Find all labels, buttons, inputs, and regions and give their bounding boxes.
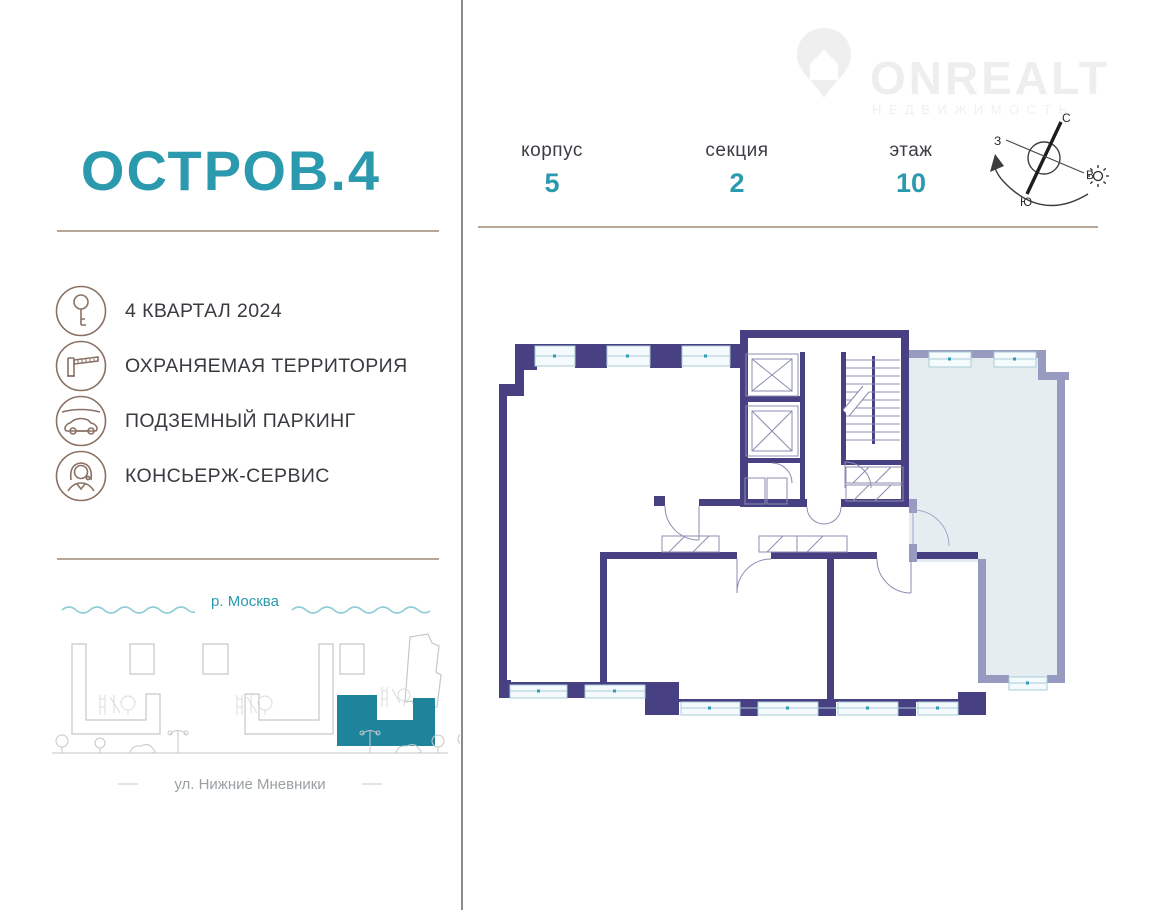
list-item-parking: ПОДЗЕМНЫЙ ПАРКИНГ — [55, 395, 455, 447]
list-item-completion: 4 КВАРТАЛ 2024 — [55, 285, 455, 337]
floor-plan-page: ОСТРОВ.4 4 КВАРТАЛ 2024 ОХРАНЯЕМАЯ ТЕРРИ… — [0, 0, 1152, 910]
list-item-label: 4 КВАРТАЛ 2024 — [125, 300, 282, 323]
car-icon — [55, 395, 107, 447]
concierge-icon — [55, 450, 107, 502]
unit-value: 2 — [672, 168, 802, 199]
page-title: ОСТРОВ.4 — [0, 138, 462, 203]
logo-text: ONREALT — [870, 52, 1110, 104]
unit-info-section: секция 2 — [672, 140, 802, 199]
divider-under-title — [57, 230, 439, 232]
building-block-1 — [72, 644, 160, 734]
compass-icon: С З В Ю — [982, 110, 1110, 220]
unit-info-building: корпус 5 — [487, 140, 617, 199]
list-item-concierge: КОНСЬЕРЖ-СЕРВИС — [55, 450, 455, 502]
divider-right-panel — [478, 226, 1098, 228]
unit-value: 10 — [846, 168, 976, 199]
onrealt-logo: ONREALT НЕДВИЖИМОСТЬ — [788, 22, 1148, 118]
amenities-list: 4 КВАРТАЛ 2024 ОХРАНЯЕМАЯ ТЕРРИТОРИЯ ПОД… — [55, 285, 455, 502]
building-block-2 — [203, 644, 333, 734]
compass-west: З — [994, 134, 1001, 148]
river-label: р. Москва — [140, 593, 350, 610]
unit-label: секция — [672, 140, 802, 162]
list-item-label: ПОДЗЕМНЫЙ ПАРКИНГ — [125, 410, 356, 433]
divider-above-map — [57, 558, 439, 560]
playground-icon — [100, 695, 135, 715]
vertical-divider — [461, 0, 463, 910]
unit-label: этаж — [846, 140, 976, 162]
list-item-label: ОХРАНЯЕМАЯ ТЕРРИТОРИЯ — [125, 355, 408, 378]
floor-plan — [497, 330, 1077, 718]
unit-info-floor: этаж 10 — [846, 140, 976, 199]
barrier-icon — [55, 340, 107, 392]
unit-value: 5 — [487, 168, 617, 199]
site-map — [40, 583, 460, 808]
playground-icon — [237, 695, 272, 715]
compass-north: С — [1062, 111, 1071, 125]
street-label: ул. Нижние Мневники — [140, 776, 360, 793]
building-block-highlighted — [337, 634, 441, 746]
highlighted-building — [337, 695, 435, 746]
unit-label: корпус — [487, 140, 617, 162]
list-item-secured-area: ОХРАНЯЕМАЯ ТЕРРИТОРИЯ — [55, 340, 455, 392]
list-item-label: КОНСЬЕРЖ-СЕРВИС — [125, 465, 330, 488]
key-icon — [55, 285, 107, 337]
